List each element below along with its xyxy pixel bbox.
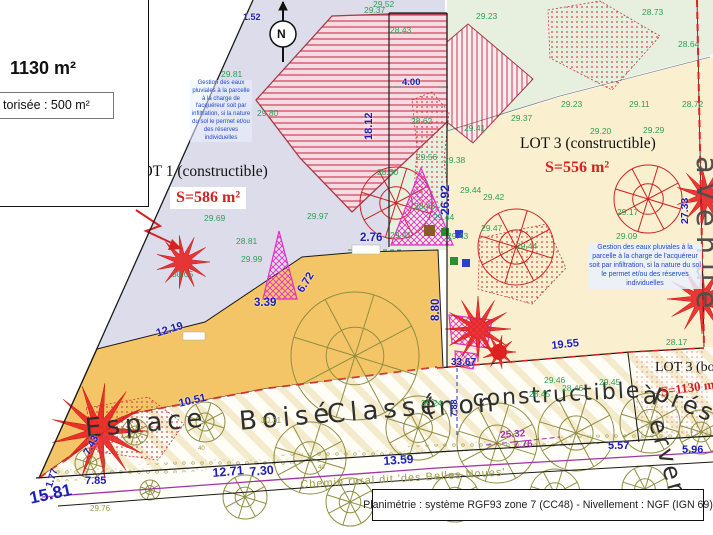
dimension-label: 5.57 (608, 441, 629, 452)
dimension-label: 7.85 (85, 476, 106, 487)
elevation-label: 29.76 (90, 505, 110, 513)
elevation-label: 29.97 (307, 212, 328, 221)
elevation-label: 29.81 (221, 70, 242, 79)
elevation-label: 29.42 (483, 193, 504, 202)
dimension-label: 7.30 (249, 464, 274, 479)
elevation-label: 29.41 (390, 231, 411, 240)
lot3-title: LOT 3 (constructible) (520, 136, 656, 152)
elevation-label: 29.56 (416, 153, 437, 162)
title-block: 1130 m² torisée : 500 m² (0, 0, 149, 207)
elevation-label: 28.73 (642, 8, 663, 17)
dimension-label: 5.96 (682, 445, 703, 456)
georeference-box: Planimétrie : système RGF93 zone 7 (CC48… (372, 489, 704, 521)
elevation-label: 29.99 (241, 255, 262, 264)
elevation-label: 29.80 (257, 109, 278, 118)
lot1-area-label: S=586 m² (170, 187, 246, 209)
elevation-label: 28.45 (529, 390, 550, 399)
compass-north-letter: N (277, 27, 286, 41)
elevation-label: 28.43 (414, 202, 435, 211)
elevation-label: 40 (318, 465, 325, 471)
elevation-label: 29.43 (447, 232, 468, 241)
elevation-label: 28.17 (666, 338, 687, 347)
dimension-label: 12.71 (212, 464, 244, 479)
street-name-label: avenue (690, 156, 713, 317)
elevation-label: 29.44 (516, 242, 537, 251)
elevation-label: 29.23 (476, 12, 497, 21)
elevation-label: 40 (198, 446, 205, 452)
dimension-label: 7.76 (513, 440, 533, 451)
cadastral-plan: 29.5229.3728.4329.2328.7328.6429.2329.11… (0, 0, 713, 535)
elevation-label: 29.09 (616, 232, 637, 241)
elevation-label: 29.38 (444, 156, 465, 165)
elevation-label: 29.17 (617, 208, 638, 217)
elevation-label: 29.41 (464, 124, 485, 133)
elevation-label: 29.24 (421, 399, 442, 408)
elevation-label: 28.72 (682, 100, 703, 109)
lot1-title: LOT 1 (constructible) (132, 164, 268, 180)
elevation-label: 28.43 (390, 26, 411, 35)
survey-point-marker (491, 344, 507, 360)
dimension-label: 33.67 (451, 358, 476, 368)
georeference-text: Planimétrie : système RGF93 zone 7 (CC48… (363, 499, 713, 511)
dimension-label: 13.59 (383, 453, 414, 467)
elevation-label: 28.46 (562, 384, 583, 393)
elevation-label: 29.47 (481, 224, 502, 233)
lot3-area-label: S=556 m² (545, 160, 609, 176)
elevation-label: 29.44 (460, 186, 481, 195)
wooded-area-lettering: Boisé (238, 401, 335, 435)
elevation-label: 29.11 (629, 100, 650, 109)
elevation-label: 28.62 (411, 117, 432, 126)
elevation-label: 29.23 (561, 100, 582, 109)
elevation-label: 28.64 (678, 40, 699, 49)
elevation-label: 29.69 (204, 214, 225, 223)
elevation-label: 29.20 (590, 127, 611, 136)
elevation-label: 30.05 (172, 270, 193, 279)
lot3-wooded-title: LOT 3 (boisé) (655, 361, 713, 375)
elevation-label: 29.37 (364, 6, 385, 15)
elevation-label: 29.45 (599, 378, 620, 387)
elevation-label: 29.37 (511, 114, 532, 123)
elevation-label: 30.31 (261, 417, 281, 425)
stormwater-note-lot1: Gestion des eaux pluviales à la parcelle… (190, 80, 252, 142)
dimension-label: 8.80 (431, 299, 443, 321)
dimension-label: 4.00 (402, 78, 421, 88)
stormwater-note-lot3: Gestion des eaux pluviales à la parcelle… (588, 244, 702, 289)
authorized-area-box: torisée : 500 m² (0, 92, 114, 119)
dimension-label: 3.39 (254, 298, 276, 310)
elevation-label: 29.29 (643, 126, 664, 135)
dimension-label: 27.33 (680, 198, 691, 224)
dimension-label: 2.76 (360, 233, 382, 245)
elevation-label: 28.81 (236, 237, 257, 246)
elevation-label: 28.30 (377, 168, 398, 177)
dimension-label: 7.88 (450, 399, 459, 417)
dimension-label: 1.52 (243, 13, 261, 22)
authorized-area-value: torisée : 500 m² (3, 98, 90, 112)
total-area-value: 1130 m² (10, 58, 76, 79)
dimension-label: 18.12 (364, 112, 375, 140)
dimension-label: 26.92 (439, 185, 451, 215)
